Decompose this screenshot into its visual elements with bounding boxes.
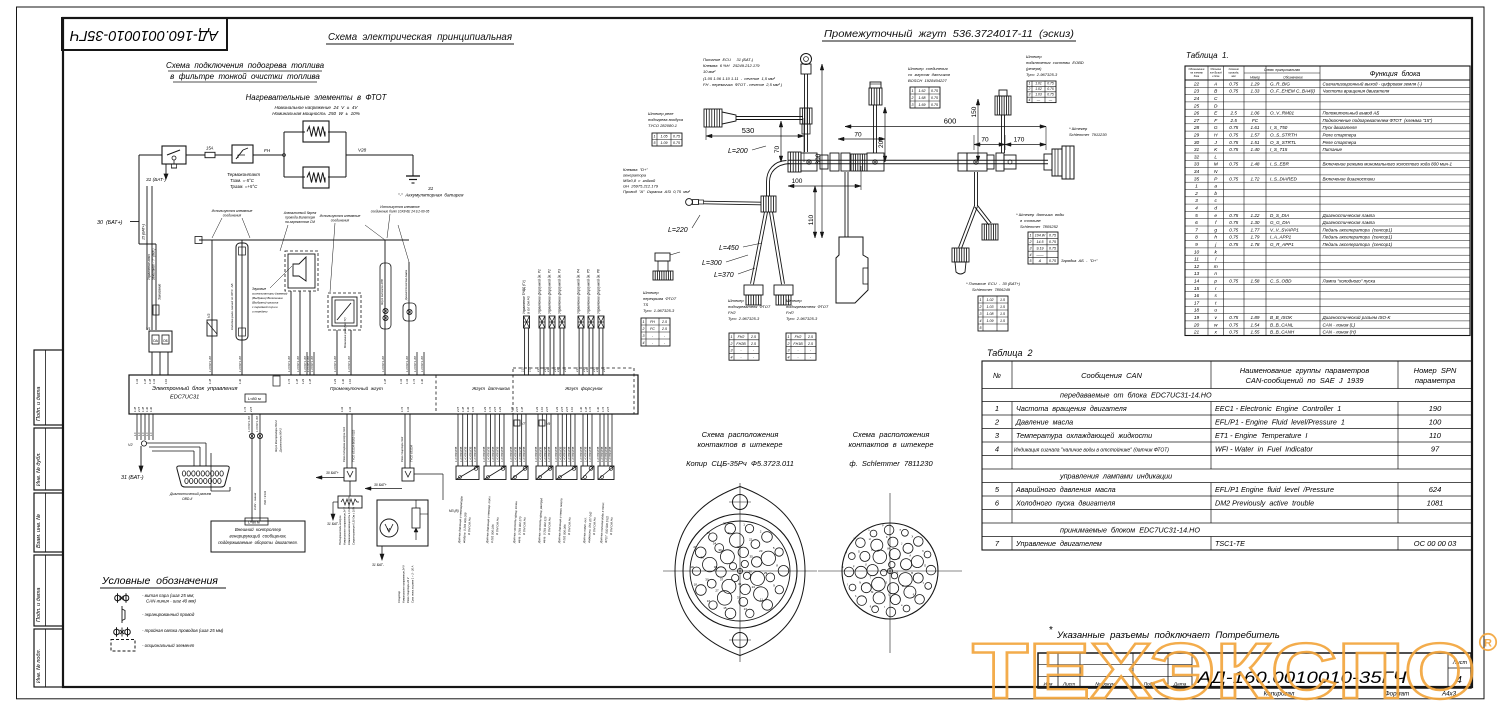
svg-text:100: 100 [792,178,803,185]
svg-text:31 (БАТ-): 31 (БАТ-) [121,475,144,481]
svg-text:Схема подключения подогрева: Схема подключения подогрева топлива [166,61,325,70]
svg-text:1081: 1081 [1427,498,1444,507]
svg-text:1: 1 [1029,82,1031,86]
svg-text:1: 1 [1195,184,1198,190]
svg-text:26: 26 [701,555,705,559]
svg-text:15: 15 [723,606,727,610]
svg-text:Стартер: Стартер [397,591,401,603]
svg-text:CAN - линия (L): CAN - линия (L) [1323,322,1356,327]
svg-text:Номинальная мощность 250 W: Номинальная мощность 250 W ± 10% [272,111,360,116]
svg-text:530: 530 [742,126,755,135]
svg-text:поддерживаемые обороты двига: поддерживаемые обороты двигателя. [218,540,298,545]
svg-text:1.4 УПР.УПВ: 1.4 УПР.УПВ [547,447,551,462]
svg-text:—: — [1048,98,1053,102]
svg-text:контактов в штекере: контактов в штекере [849,440,934,449]
svg-text:28: 28 [723,521,727,525]
svg-text:1.48: 1.48 [295,378,299,384]
svg-text:3: 3 [980,312,982,316]
svg-text:9.19: 9.19 [1037,246,1044,250]
svg-text:0.75: 0.75 [1229,315,1238,320]
svg-text:перекрыва ФТОТ: перекрыва ФТОТ [643,296,677,301]
svg-text:1.40: 1.40 [145,406,149,412]
svg-text:6: 6 [1195,220,1198,226]
svg-text:Обозначение: Обозначение [1283,75,1303,79]
svg-text:* Питание ECU - 30 (БАТ+): * Питание ECU - 30 (БАТ+) [966,281,1021,286]
svg-text:N: N [1214,169,1218,175]
svg-text:B: B [911,571,913,575]
svg-text:l: l [1215,257,1217,263]
svg-text:16: 16 [1194,293,1200,299]
svg-text:мм²: мм² [1232,75,1237,78]
svg-text:1.89: 1.89 [1251,315,1260,320]
svg-text:блка: блка [1194,74,1200,78]
svg-text:0.75: 0.75 [1229,140,1238,145]
svg-text:1.4 УПР.УПВ: 1.4 УПР.УПВ [563,447,567,462]
svg-text:11: 11 [1194,257,1199,263]
svg-text:n: n [1214,272,1217,277]
svg-text:1.05: 1.05 [661,135,668,139]
svg-text:1.02: 1.02 [1035,87,1042,91]
svg-text:M: M [1214,162,1218,168]
svg-text:OBD-II: OBD-II [182,497,192,501]
svg-text:Реле стартера 24 V: Реле стартера 24 V [406,577,410,603]
svg-text:1.33: 1.33 [510,406,514,412]
svg-text:2.5: 2.5 [750,342,756,346]
svg-text:1.62: 1.62 [919,89,926,93]
svg-text:Клемма "D+": Клемма "D+" [623,167,648,172]
svg-text:1.4 САН 1.4М: 1.4 САН 1.4М [334,355,337,372]
svg-text:1.4 УПР.УПВ: 1.4 УПР.УПВ [468,447,472,462]
svg-text:F: F [853,564,855,568]
svg-text:1.4 УПР.УПВ: 1.4 УПР.УПВ [513,447,517,462]
svg-text:1.48: 1.48 [584,406,588,412]
svg-text:FH2: FH2 [738,335,745,339]
svg-text:33: 33 [737,595,741,599]
svg-text:CAN - линия: CAN - линия [253,492,257,510]
svg-text:V28: V28 [358,148,367,153]
svg-text:1.33: 1.33 [135,378,139,384]
svg-text:МЗ (В): МЗ (В) [449,509,459,513]
svg-text:D: D [1214,103,1218,109]
svg-text:В ОМ ОМ РО: В ОМ ОМ РО [567,516,572,535]
svg-text:0.75: 0.75 [1229,279,1238,284]
svg-text:1.3: 1.3 [150,432,153,436]
svg-text:g: g [1214,228,1217,233]
svg-text:1.48: 1.48 [461,406,465,412]
svg-text:1.4 УПР.УПВ: 1.4 УПР.УПВ [571,447,575,462]
svg-text:FC: FC [1252,118,1259,123]
svg-text:провода Вилатерм: провода Вилатерм [285,216,316,220]
svg-text:-: - [797,349,799,353]
svg-text:V1: V1 [146,327,151,331]
svg-text:2: 2 [911,96,914,100]
svg-text:A: A [909,554,911,558]
svg-text:- опциональный элемент: - опциональный элемент [142,643,195,648]
svg-text:1.4 УПР.УПВ: 1.4 УПР.УПВ [518,447,522,462]
svg-text:V_V_SVAPP1: V_V_SVAPP1 [1270,227,1299,232]
svg-text:1.40: 1.40 [238,378,242,384]
svg-text:ОА: ОА [153,339,159,343]
svg-text:6: 6 [995,498,1000,507]
svg-text:генератора: генератора [623,173,647,178]
svg-text:Сопротивление 0,30 Ом ± 10%: Сопротивление 0,30 Ом ± 10% [352,506,356,545]
svg-text:1.30: 1.30 [1251,220,1260,225]
svg-text:32: 32 [1194,154,1200,160]
svg-text:TSC1-TE: TSC1-TE [1215,539,1245,548]
svg-text:EFL/P1 - Engine Fluid level/: EFL/P1 - Engine Fluid level/Pressure 1 [1215,417,1345,426]
svg-text:1.72: 1.72 [588,406,592,412]
svg-text:5: 5 [654,141,656,145]
svg-text:1.4 САН 1.4М: 1.4 САН 1.4М [414,355,417,372]
svg-text:2.15: 2.15 [493,406,497,413]
svg-text:G_G_DIA: G_G_DIA [1270,220,1290,225]
svg-text:70: 70 [774,146,781,154]
svg-text:ние Вывод: ние Вывод [1210,71,1223,74]
svg-text:Сила тока на реле 1 + 2 - 20 А: Сила тока на реле 1 + 2 - 20 А [411,565,415,603]
svg-text:-: - [810,355,812,359]
svg-text:1.4 САН 1.4М: 1.4 САН 1.4М [348,355,351,372]
svg-text:1.72: 1.72 [400,406,404,412]
svg-text:16: 16 [707,599,711,603]
svg-text:-: - [652,341,654,345]
svg-text:1.4 УПР.УПВ: 1.4 УПР.УПВ [600,447,604,462]
svg-text:FнП: FнП [786,310,794,315]
svg-text:150: 150 [971,106,978,117]
svg-text:1.4 УПР.УПВ: 1.4 УПР.УПВ [500,447,504,462]
svg-text:D: D [924,563,926,567]
svg-text:1.3: 1.3 [138,432,141,436]
svg-text:Педаль акселератора (сенсор1): Педаль акселератора (сенсор1) [1323,235,1393,240]
svg-text:1.03: 1.03 [987,305,994,309]
svg-text:5: 5 [1195,213,1198,219]
svg-text:Подогреватель воздуха: Подогреватель воздуха [338,515,342,545]
svg-text:В ОМ ОМ РО: В ОМ ОМ РО [592,516,597,535]
svg-text:0.75: 0.75 [1049,234,1056,238]
svg-text:Диагностический разъем: Диагностический разъем [169,492,212,496]
svg-text:1.72: 1.72 [287,378,291,384]
svg-text:Schlemmer 7805252: Schlemmer 7805252 [1020,224,1059,229]
svg-text:O_V_RM01: O_V_RM01 [1270,111,1294,116]
svg-text:I_S_DIARED: I_S_DIARED [1270,176,1297,181]
svg-text:0.75: 0.75 [1229,176,1238,181]
svg-text:1.48: 1.48 [133,406,137,412]
svg-text:Условные обозначения: Условные обозначения [101,575,218,587]
svg-text:3: 3 [995,431,1000,440]
svg-text:(1.05 1.06 1.10 1.11 - сечен: (1.05 1.06 1.10 1.11 - сечение 1,5 мм² [703,76,776,81]
svg-text:1.29: 1.29 [483,406,487,412]
svg-text:1.4 САН 1.4М: 1.4 САН 1.4М [239,355,242,372]
svg-text:1: 1 [643,320,645,324]
svg-text:1.4 УПР.УПВ: 1.4 УПР.УПВ [567,447,571,462]
svg-text:CAN - линия (H): CAN - линия (H) [1323,330,1357,335]
svg-text:сигнализаторы (зуммер): сигнализаторы (зуммер) [252,292,287,296]
svg-text:Штекер реле: Штекер реле [648,111,674,116]
svg-text:x: x [1214,331,1218,336]
svg-text:(резерв): (резерв) [1026,66,1042,71]
svg-text:P: P [1214,176,1218,182]
svg-text:7: 7 [1195,227,1198,233]
svg-text:27: 27 [1193,118,1200,124]
svg-text:h: h [1214,235,1217,241]
svg-text:m: m [1214,265,1218,270]
svg-text:I_S_T15: I_S_T15 [1270,147,1288,152]
svg-text:1.4 САН 1.4М: 1.4 САН 1.4М [304,355,307,372]
svg-text:r: r [1215,286,1217,292]
svg-text:зажигания - "Г" (вкл.): зажигания - "Г" (вкл.) [152,249,156,281]
svg-text:2: 2 [730,342,733,346]
svg-text:2: 2 [787,342,790,346]
svg-text:Номинальное напряжение 24 V: Номинальное напряжение 24 V [402,565,406,603]
svg-text:——: —— [1035,253,1044,257]
svg-text:1.4 УПР.УПВ: 1.4 УПР.УПВ [496,447,500,462]
svg-text:1.61: 1.61 [570,406,574,412]
svg-text:FH - перемычка ФТОТ - сечение: FH - перемычка ФТОТ - сечение 2,5 мм² ) [703,82,783,87]
svg-text:19: 19 [690,565,694,569]
svg-text:40: 40 [736,545,740,549]
svg-text:1.4 УПР.УПВ: 1.4 УПР.УПВ [509,447,513,462]
svg-text:на агрегатном СМ: на агрегатном СМ [285,220,315,224]
svg-text:Включение диагностики: Включение диагностики [1323,176,1376,181]
svg-text:Schlemmer 7806249: Schlemmer 7806249 [972,287,1011,292]
svg-text:L≈80 м: L≈80 м [248,396,261,401]
svg-text:f: f [884,605,885,609]
svg-text:* Штекер датчика воды: * Штекер датчика воды [1016,212,1064,217]
svg-text:0.75: 0.75 [1047,82,1054,86]
svg-text:1.03: 1.03 [1035,92,1042,96]
svg-text:100: 100 [1429,417,1442,426]
svg-text:Управление ТНВД (ГУ): Управление ТНВД (ГУ) [522,280,526,314]
svg-text:FH: FH [650,320,655,324]
svg-text:Зажигание: Зажигание [158,283,162,300]
svg-text:-: - [664,334,666,338]
svg-text:В ОМ ОМ РО: В ОМ ОМ РО [467,516,472,535]
svg-text:Внешний контроллер: Внешний контроллер [235,527,282,532]
svg-text:1.72: 1.72 [471,406,475,412]
svg-text:8: 8 [776,564,778,568]
svg-text:Звуковые: Звуковые [252,287,266,291]
svg-text:m: m [854,537,856,540]
svg-text:1.48: 1.48 [148,378,152,384]
svg-text:1.4 САН 1.4М: 1.4 САН 1.4М [307,355,310,372]
svg-text:Зарядка АБ - "D+": Зарядка АБ - "D+" [1061,258,1098,263]
svg-text:2.15: 2.15 [576,367,579,373]
svg-text:26: 26 [1193,111,1200,117]
svg-text:U: U [865,563,867,567]
svg-text:0.75: 0.75 [673,135,680,139]
svg-text:1.48: 1.48 [520,406,524,412]
svg-text:30: 30 [1194,140,1200,146]
svg-text:5: 5 [980,326,982,330]
svg-text:e: e [1214,214,1217,219]
svg-text:-: - [740,355,742,359]
svg-text:O_S_STRTH: O_S_STRTH [1270,133,1298,138]
svg-text:ТУСО 282080-1: ТУСО 282080-1 [648,123,677,128]
svg-text:в топливе: в топливе [1020,218,1042,223]
svg-text:-: - [753,355,755,359]
svg-text:Частота вращения двигателя: Частота вращения двигателя [1016,404,1127,413]
svg-text:30 БАТ+: 30 БАТ+ [326,471,339,475]
svg-text:принимаемые блоком EDC7UC31-: принимаемые блоком EDC7UC31-14.НО [1060,525,1200,534]
svg-text:L: L [1214,154,1217,160]
svg-text:V: V [871,548,873,552]
svg-text:1.61: 1.61 [164,378,168,384]
svg-text:Жгут Контроллера 804-2: Жгут Контроллера 804-2 [274,420,278,453]
svg-text:21: 21 [693,545,697,549]
svg-text:23: 23 [1193,89,1200,95]
svg-text:б: б [922,549,924,553]
svg-text:31: 31 [728,531,732,535]
svg-text:1.5: 1.5 [1000,312,1005,316]
svg-text:l: l [846,551,847,555]
svg-text:4: 4 [1195,206,1198,212]
svg-text:1.55: 1.55 [1251,330,1260,335]
svg-text:1.29: 1.29 [301,378,305,384]
svg-text:d: d [1214,206,1217,212]
svg-text:1.33: 1.33 [152,378,156,384]
svg-text:соединение болт 10Х8-6Е 24 9.2: соединение болт 10Х8-6Е 24 9.2-60-05 [371,210,430,214]
svg-text:0.75: 0.75 [1047,92,1054,96]
svg-text:Жгут датчиков: Жгут датчиков [471,386,510,392]
svg-text:0.75: 0.75 [1229,213,1238,218]
svg-text:Провод "А" Окраска ASI 0,7: Провод "А" Окраска ASI 0,75 мм² [623,189,691,194]
svg-text:1.4 УПР.УПВ: 1.4 УПР.УПВ [454,447,458,462]
svg-text:"-" Аккумуляторная батарея: "-" Аккумуляторная батарея [398,193,464,198]
svg-text:V3: V3 [207,314,211,318]
svg-text:B_B_CANH: B_B_CANH [1270,330,1295,335]
svg-text:Штекер: Штекер [643,290,659,295]
svg-text:1.4 САН 1.4М: 1.4 САН 1.4М [421,355,424,372]
svg-text:на клемму: на клемму [1190,71,1203,74]
svg-text:Управление форсункой дв. Р3: Управление форсункой дв. Р3 [558,269,562,314]
svg-text:G: G [858,549,860,553]
svg-text:35: 35 [1194,176,1200,182]
svg-text:7: 7 [995,539,1000,548]
svg-text:1: 1 [654,135,656,139]
svg-text:Номинальная мощность 1,9 кВт ±: Номинальная мощность 1,9 кВт ± 10% [347,496,351,545]
svg-text:Схема электрическая принципи: Схема электрическая принципиальная [328,31,512,43]
svg-text:1.5: 1.5 [1000,298,1005,302]
svg-text:FH2B: FH2B [736,342,746,346]
svg-text:Диагностический разъем ISO-K: Диагностический разъем ISO-K [1322,314,1392,320]
svg-text:1.78: 1.78 [1251,242,1260,247]
svg-text:1.40: 1.40 [149,406,153,412]
svg-text:j: j [1214,242,1217,248]
svg-text:В ОЛ ОМ РО: В ОЛ ОМ РО [527,295,531,314]
svg-text:Температура охлаждающей жидк: Температура охлаждающей жидкости [1016,431,1152,440]
svg-text:33: 33 [1194,162,1200,168]
svg-text:20: 20 [1193,322,1200,328]
svg-text:25: 25 [707,531,711,535]
svg-text:3: 3 [1029,92,1031,96]
svg-text:параметра: параметра [1415,376,1455,385]
svg-text:контактов в штекере: контактов в штекере [698,440,783,449]
svg-text:1.72: 1.72 [412,378,416,384]
svg-text:28: 28 [1193,125,1200,131]
svg-text:K: K [1214,147,1218,153]
svg-text:ТЕХЭКСПО: ТЕХЭКСПО [972,626,1476,707]
svg-text:Подп. и дата: Подп. и дата [36,588,42,622]
svg-text:Холодного пуска двигателя: Холодного пуска двигателя [1015,498,1115,507]
svg-text:104.W: 104.W [1035,234,1046,238]
svg-text:1: 1 [731,335,733,339]
svg-text:L=200: L=200 [728,148,748,155]
svg-text:0.75: 0.75 [1229,220,1238,225]
svg-text:FH1B: FH1B [793,342,803,346]
svg-text:H: H [1214,133,1218,139]
svg-text:Используется клеммное: Используется клеммное [380,205,419,209]
svg-text:C_S_OBD: C_S_OBD [1270,279,1292,284]
svg-text:1.40: 1.40 [596,406,600,412]
svg-text:9: 9 [1195,242,1198,248]
svg-text:Управление форсункой дв. Р6: Управление форсункой дв. Р6 [597,269,601,314]
svg-text:1.33: 1.33 [348,406,352,412]
svg-text:Взам. инв. №: Взам. инв. № [36,514,42,548]
svg-text:31 БАТ-: 31 БАТ- [327,522,340,526]
svg-text:31: 31 [1194,147,1200,153]
svg-text:15А: 15А [206,146,214,151]
svg-text:0.75: 0.75 [1049,240,1056,244]
svg-text:2: 2 [1028,87,1031,91]
svg-text:L=220: L=220 [668,227,688,234]
svg-text:18: 18 [1194,308,1200,314]
svg-text:2.5: 2.5 [661,327,667,331]
svg-text:12: 12 [1194,264,1200,270]
svg-text:30: 30 [705,577,709,581]
svg-text:E: E [1214,111,1218,117]
svg-text:1.61: 1.61 [348,378,352,384]
svg-text:b: b [1214,191,1217,197]
svg-text:M: M [871,590,873,594]
svg-text:-: - [740,349,742,353]
svg-text:1.3 САН 1.3М: 1.3 САН 1.3М [248,415,251,432]
svg-text:2.15: 2.15 [545,406,549,413]
svg-text:1.61: 1.61 [540,406,544,412]
svg-text:в фильтре тонкой очистки т: в фильтре тонкой очистки топлива [170,72,320,81]
svg-text:ОБ: ОБ [163,339,169,343]
svg-text:1.4 УПР.УПВ: 1.4 УПР.УПВ [558,447,562,462]
svg-text:* Штекер: * Штекер [1069,126,1088,131]
svg-text:0.75: 0.75 [1047,87,1054,91]
svg-text:1.68: 1.68 [919,96,926,100]
svg-text:Подключение подогревателем ФТО: Подключение подогревателем ФТОТ (клемма … [1323,118,1433,123]
svg-text:3: 3 [731,349,733,353]
svg-text:C: C [1214,96,1218,102]
svg-text:a: a [1214,185,1217,190]
svg-text:Таблица 2: Таблица 2 [987,348,1033,358]
svg-text:0.75: 0.75 [1229,242,1238,247]
svg-text:EEC1 - Electronic Engine Con: EEC1 - Electronic Engine Controller 1 [1215,404,1341,413]
svg-text:Штекер соединения: Штекер соединения [908,66,948,71]
svg-text:ТYCO V23134: ТYCO V23134 [410,445,414,462]
svg-text:h: h [855,594,857,598]
svg-text:-: - [753,349,755,353]
svg-text:Инв. № подл.: Инв. № подл. [36,649,42,683]
svg-text:B_B_ISOK: B_B_ISOK [1270,315,1293,320]
svg-text:1.4 УПР.УПВ: 1.4 УПР.УПВ [588,447,592,462]
svg-text:G_R_APP1: G_R_APP1 [1270,242,1294,247]
svg-text:1.40: 1.40 [420,378,424,384]
svg-text:Реле подогрева воздуха SH1: Реле подогрева воздуха SH1 [342,426,346,462]
svg-text:19: 19 [1194,315,1200,321]
svg-text:70: 70 [854,132,862,139]
svg-text:0.75: 0.75 [1229,330,1238,335]
svg-text:0.75: 0.75 [1229,81,1238,86]
svg-text:2.15: 2.15 [456,406,460,413]
svg-text:0.75: 0.75 [931,103,938,107]
svg-text:1.4 САН 1.4М: 1.4 САН 1.4М [209,355,212,372]
svg-text:J: J [901,541,903,545]
svg-text:Номинальное напряжение 24 V: Номинальное напряжение 24 V ± 4V [275,105,359,110]
